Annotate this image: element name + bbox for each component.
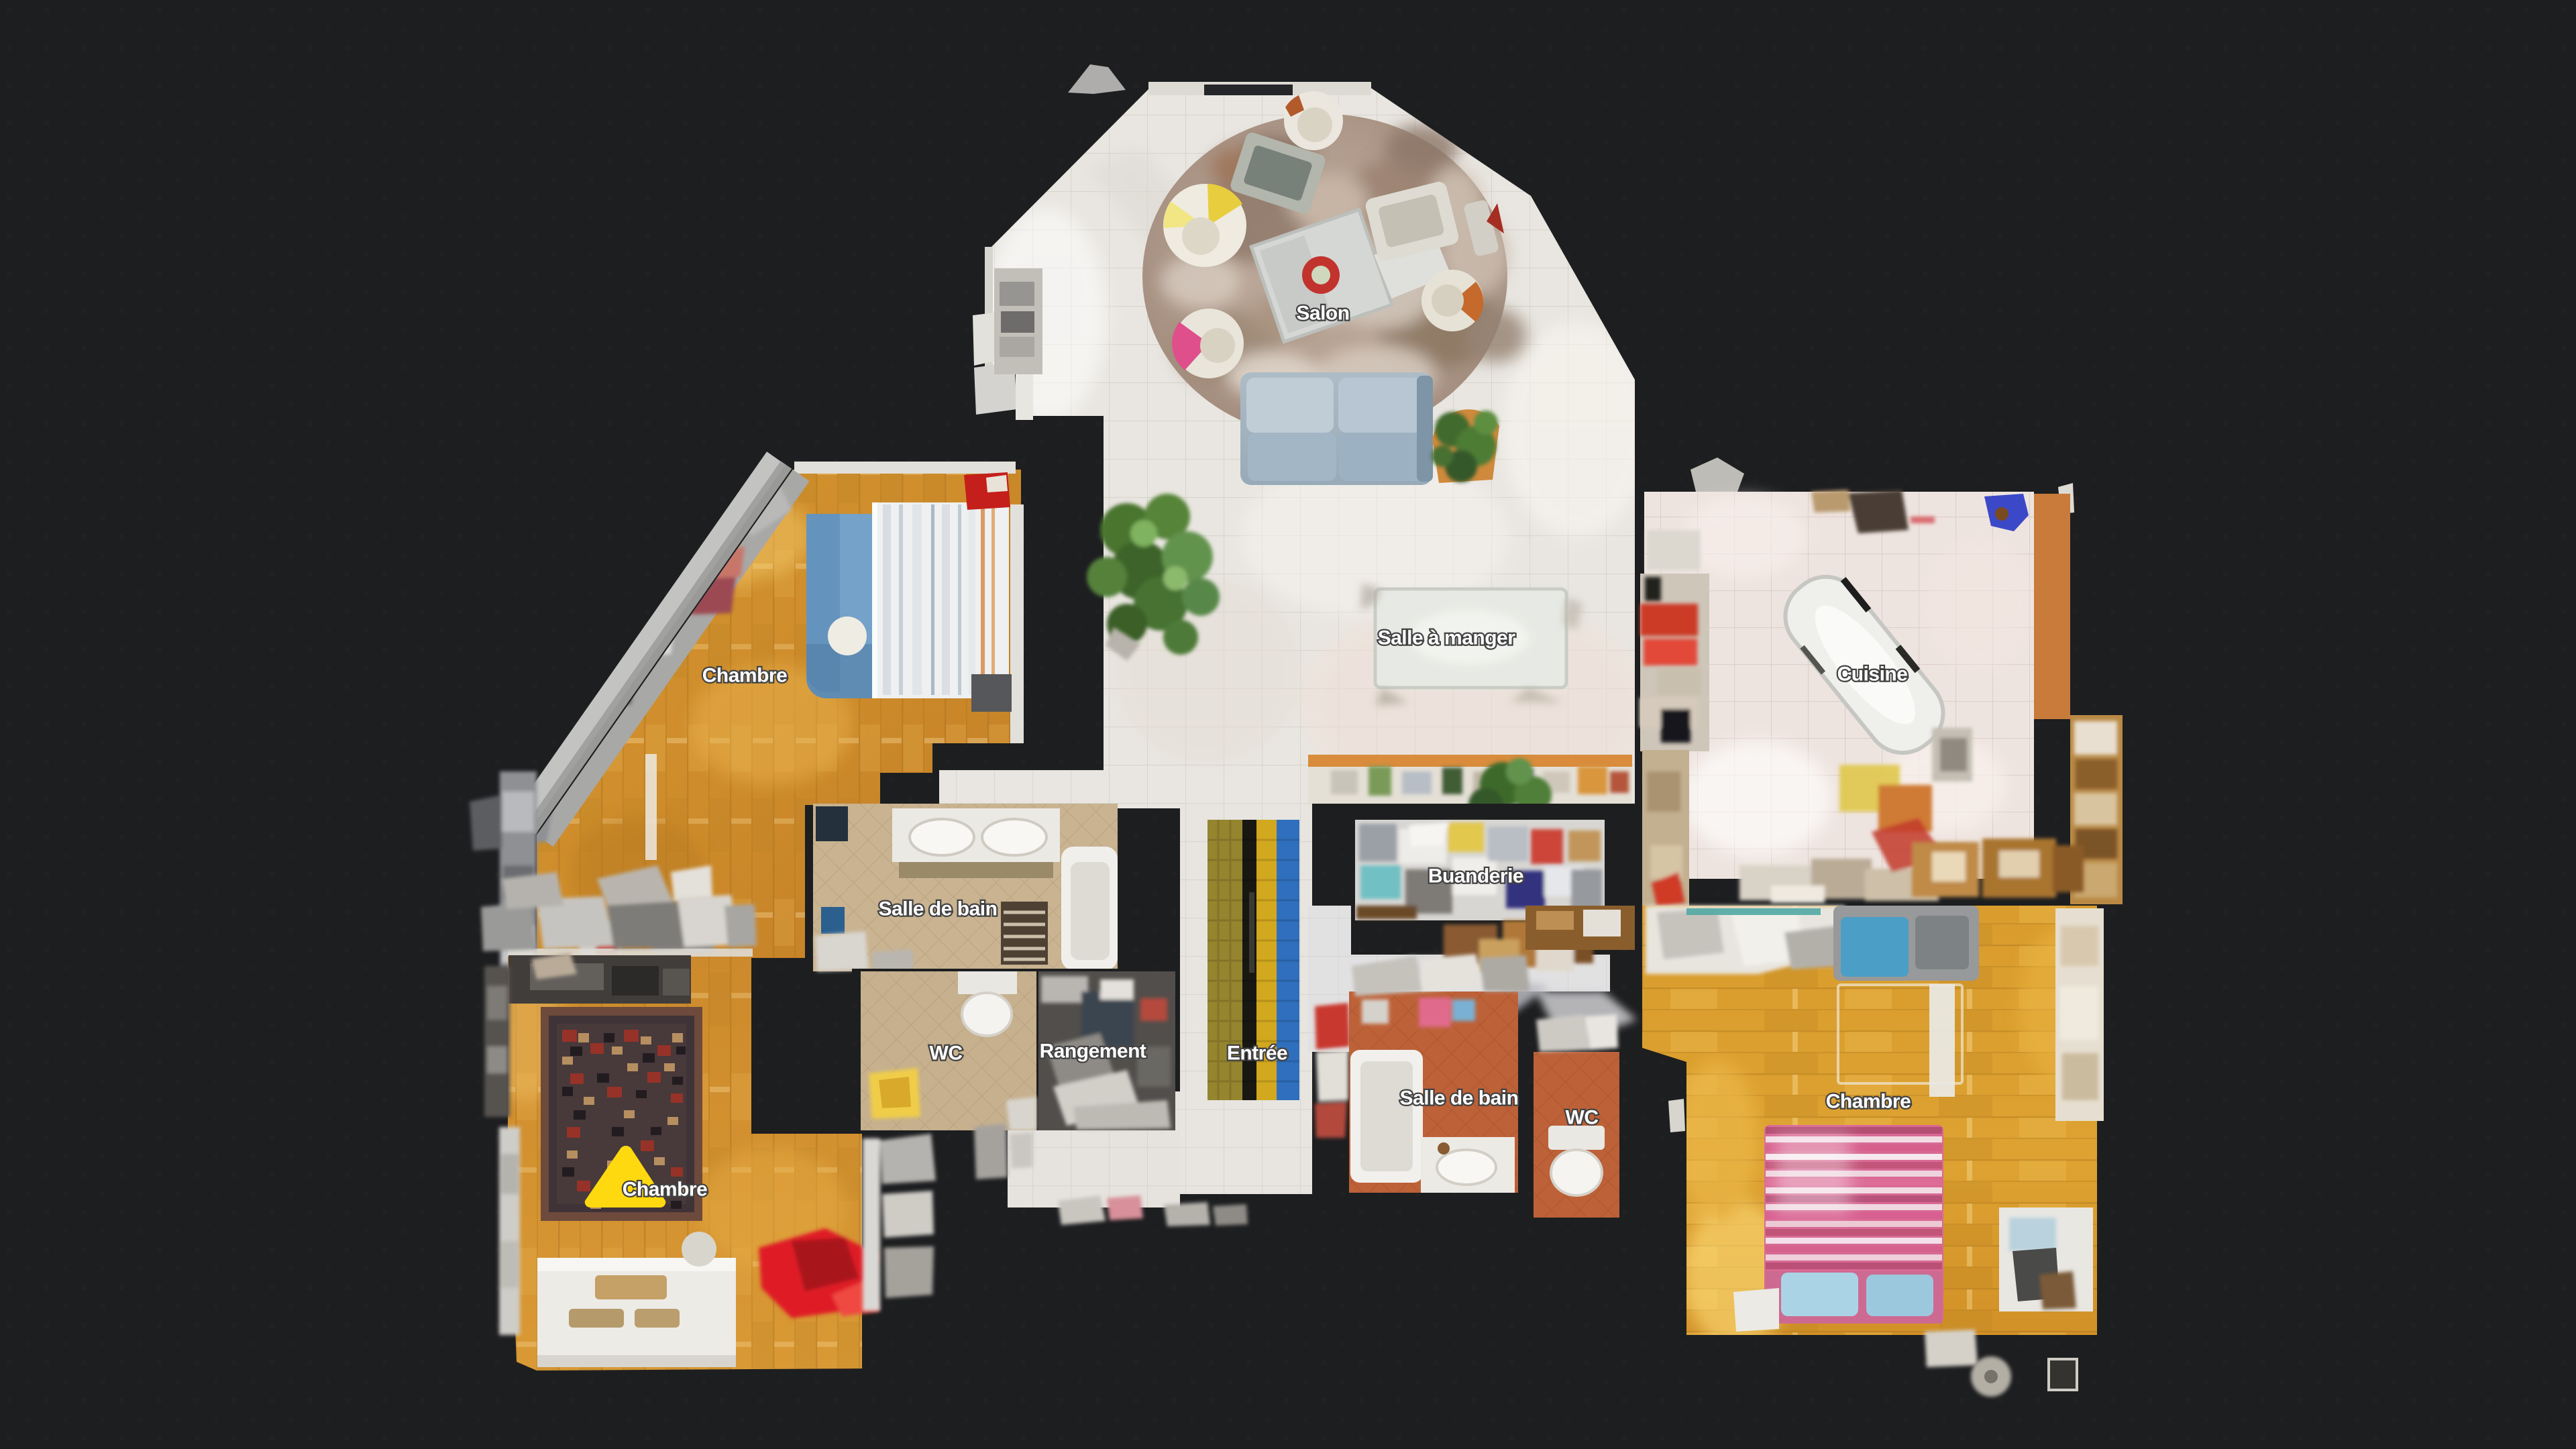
svg-text:WC: WC [930, 1042, 963, 1065]
svg-text:Cuisine: Cuisine [1837, 663, 1908, 686]
svg-text:Rangement: Rangement [1040, 1040, 1146, 1063]
svg-text:Salon: Salon [1296, 303, 1349, 325]
svg-text:Buanderie: Buanderie [1428, 865, 1523, 888]
svg-text:Chambre: Chambre [702, 665, 788, 687]
svg-text:Salle de bain: Salle de bain [879, 898, 998, 920]
svg-text:Salle de bain: Salle de bain [1400, 1087, 1519, 1110]
svg-text:Chambre: Chambre [1826, 1091, 1911, 1113]
svg-text:Chambre: Chambre [623, 1179, 708, 1201]
svg-text:Salle à manger: Salle à manger [1378, 627, 1516, 649]
svg-text:Entrée: Entrée [1227, 1042, 1287, 1065]
svg-text:WC: WC [1566, 1107, 1599, 1129]
